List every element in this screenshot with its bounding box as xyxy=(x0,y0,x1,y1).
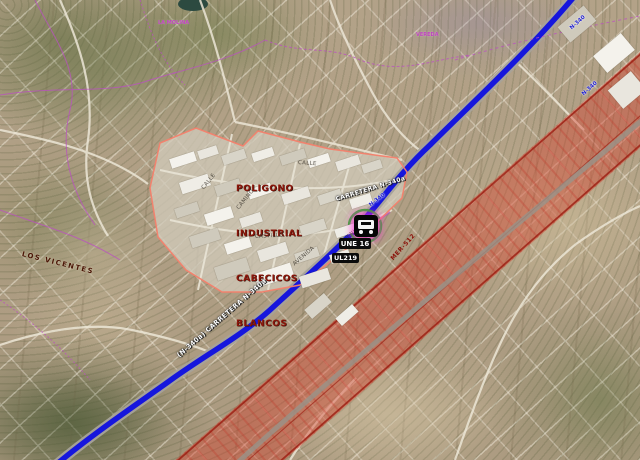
place-label-la-molina: LA MOLINA xyxy=(158,20,189,26)
map-canvas[interactable]: POLIGONO INDUSTRIAL CABECICOS BLANCOS LO… xyxy=(0,0,640,460)
marker-route-tag: UL219 xyxy=(332,253,359,263)
poligono-line: CABECICOS xyxy=(236,272,302,287)
street-label: CALLE xyxy=(298,160,317,167)
poligono-label: POLIGONO INDUSTRIAL CABECICOS BLANCOS xyxy=(236,152,302,362)
truck-icon-wheel xyxy=(369,230,373,234)
vehicle-marker[interactable] xyxy=(354,215,378,237)
marker-code-tag: UNE 16 xyxy=(339,238,371,249)
truck-icon-wheel xyxy=(359,230,363,234)
truck-icon-windshield xyxy=(361,222,371,225)
poligono-line: BLANCOS xyxy=(236,317,302,332)
place-label-vereda: VEREDA xyxy=(416,32,439,38)
